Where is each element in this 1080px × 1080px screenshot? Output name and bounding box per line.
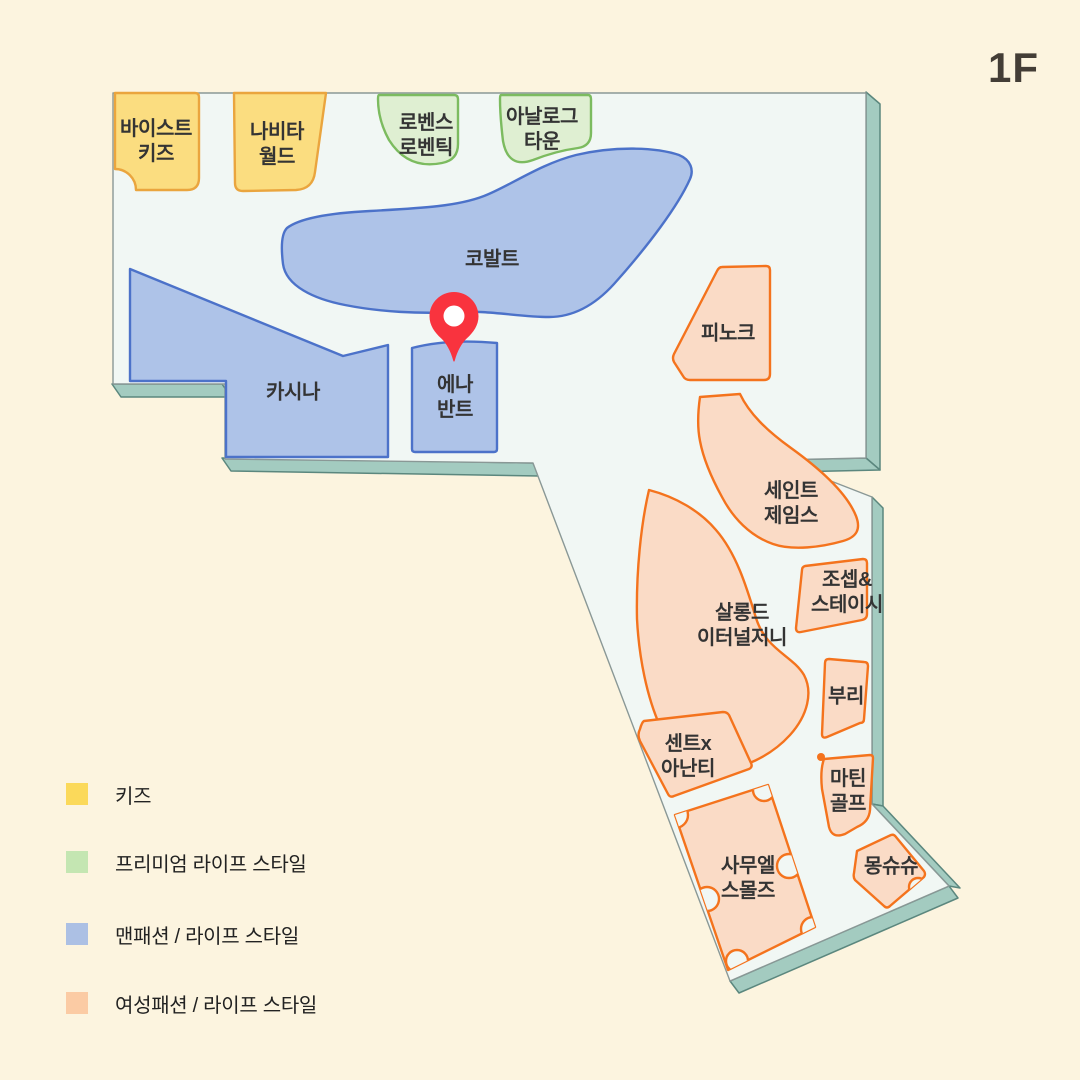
legend-label-women-fashion: 여성패션 / 라이프 스타일 xyxy=(115,989,317,1018)
shop-shape-joseph-stacey[interactable] xyxy=(796,559,867,632)
legend-swatch-premium-lifestyle xyxy=(66,851,88,873)
legend-swatch-men-fashion xyxy=(66,923,88,945)
legend-swatch-kids xyxy=(66,783,88,805)
martin-golf-corner-dot xyxy=(817,753,825,761)
legend-item-premium-lifestyle: 프리미엄 라이프 스타일 xyxy=(66,849,307,875)
shop-shape-navita-world[interactable] xyxy=(234,93,326,191)
legend-swatch-women-fashion xyxy=(66,992,88,1014)
floor-map-page: 바이스트키즈 나비타월드 로벤스로벤틱 아날로그타운 코발트 카시나 에나반트 … xyxy=(0,0,1080,1080)
legend-item-kids: 키즈 xyxy=(66,781,151,807)
legend-label-men-fashion: 맨패션 / 라이프 스타일 xyxy=(115,920,299,949)
legend-label-premium-lifestyle: 프리미엄 라이프 스타일 xyxy=(115,848,307,877)
floor-title: 1F xyxy=(988,44,1039,92)
legend-item-men-fashion: 맨패션 / 라이프 스타일 xyxy=(66,921,299,947)
legend: 키즈 프리미엄 라이프 스타일 맨패션 / 라이프 스타일 여성패션 / 라이프… xyxy=(66,781,406,1031)
legend-label-kids: 키즈 xyxy=(115,780,151,809)
legend-item-women-fashion: 여성패션 / 라이프 스타일 xyxy=(66,990,317,1016)
